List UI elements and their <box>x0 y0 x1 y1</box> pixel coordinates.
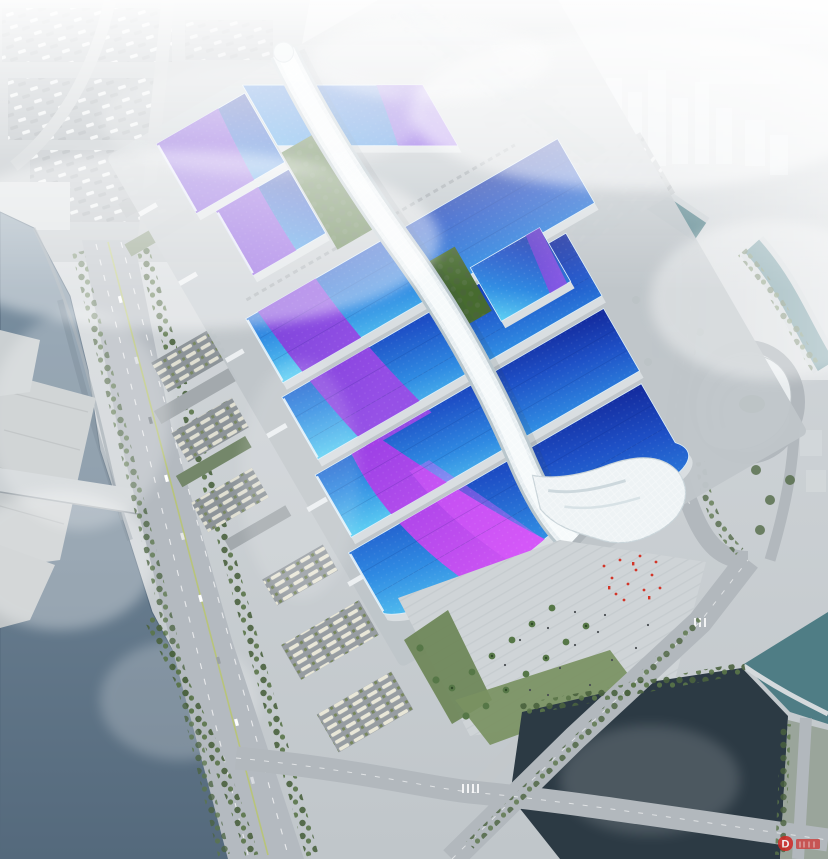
watermark-logo-letter: D <box>782 839 790 851</box>
rendering-canvas: Aerial architectural rendering of a rive… <box>0 0 828 859</box>
aerial-rendering: Aerial architectural rendering of a rive… <box>0 0 828 859</box>
